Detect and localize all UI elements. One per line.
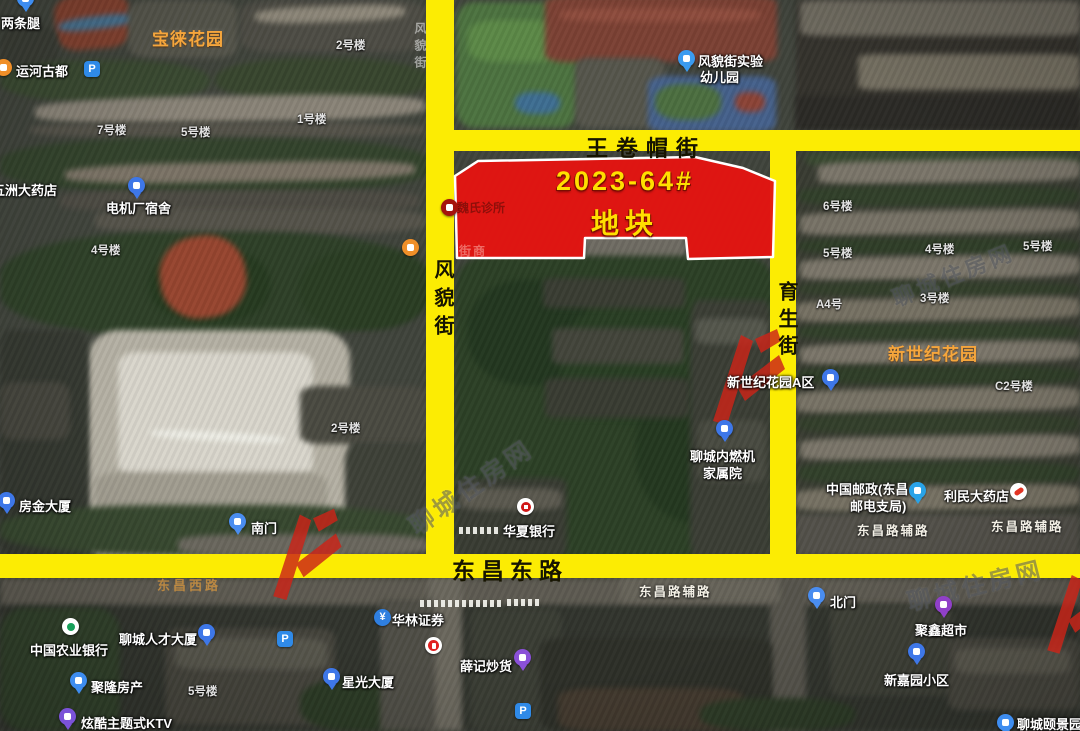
- restaurant-icon-glyph: [0, 64, 7, 71]
- poi-label: 北门: [830, 592, 856, 611]
- supermarket-pin-icon[interactable]: [935, 596, 952, 613]
- poi-label: 街商: [459, 242, 487, 259]
- estate-name-label: 宝徕花园: [152, 25, 224, 50]
- building-label: 4号楼: [925, 241, 954, 257]
- parking-icon-glyph: P: [88, 64, 95, 75]
- poi-label: 利民大药店: [944, 486, 1009, 505]
- ktv-pin-icon[interactable]: [59, 708, 76, 725]
- building-label: 6号楼: [823, 198, 852, 214]
- poi-label: 新嘉园小区: [884, 670, 949, 689]
- parking-icon[interactable]: P: [84, 61, 100, 77]
- poi-label: 幼儿园: [700, 67, 739, 86]
- road-label-wangjuanmao: 王卷帽街: [586, 131, 706, 163]
- parking-icon-glyph: P: [281, 634, 288, 645]
- shop-icon[interactable]: [402, 239, 419, 256]
- road-label-yusheng: 育生街: [772, 281, 801, 362]
- bank-pin-icon[interactable]: [822, 369, 839, 386]
- bank-pin-icon-glyph: [827, 374, 834, 381]
- road-sub-label: 东昌西路: [157, 575, 221, 594]
- road-sub-label: 东昌路辅路: [857, 520, 930, 539]
- poi-label: 电机厂宿舍: [106, 198, 171, 217]
- gate-pin-icon-glyph: [234, 518, 241, 525]
- restaurant-icon[interactable]: [0, 59, 12, 76]
- poi-label: 华林证券: [392, 610, 444, 629]
- poi-label: 华夏银行: [503, 521, 555, 540]
- bank-pin-icon-glyph: [328, 673, 335, 680]
- post-office-pin-icon-glyph: [914, 487, 921, 494]
- building-label: 3号楼: [920, 290, 949, 306]
- shop-icon-glyph: [407, 244, 414, 251]
- supermarket-pin-icon-glyph: [940, 601, 947, 608]
- road-label-dongchangdong: 东昌东路: [452, 552, 568, 586]
- building-label: 4号楼: [91, 242, 120, 258]
- fastfood-icon[interactable]: [425, 637, 442, 654]
- poi-label: 南门: [251, 518, 277, 537]
- pharmacy-icon[interactable]: [1010, 483, 1027, 500]
- building-label: 5号楼: [1023, 238, 1052, 254]
- poi-label: 薛记炒货: [460, 656, 512, 675]
- road-sub-label: 东昌路辅路: [991, 516, 1064, 535]
- realty-pin-icon[interactable]: [70, 672, 87, 689]
- bank-pin-icon-glyph: [3, 497, 10, 504]
- realty-pin-icon-glyph: [75, 677, 82, 684]
- gate-pin-icon[interactable]: [808, 587, 825, 604]
- bank-pin-icon-glyph: [203, 629, 210, 636]
- poi-label: 星光大厦: [342, 672, 394, 691]
- estate-name-label: 新世纪花园: [888, 340, 978, 365]
- building-label: A4号: [816, 296, 842, 312]
- post-office-pin-icon[interactable]: [909, 482, 926, 499]
- poi-label: 邮电支局): [850, 496, 906, 515]
- poi-label: 聚鑫超市: [915, 620, 967, 639]
- bank-pin-icon-glyph: [133, 182, 140, 189]
- road-sub-label: 东昌路辅路: [639, 581, 712, 600]
- securities-icon-glyph: ¥: [379, 612, 385, 623]
- huaxia-bank-icon-glyph: [521, 502, 531, 512]
- parcel-number: 2023-64#: [480, 166, 770, 197]
- estate-pin-icon[interactable]: [997, 714, 1014, 731]
- poi-label: 魏氏诊所: [457, 199, 505, 216]
- snack-pin-icon[interactable]: [514, 649, 531, 666]
- abc-bank-icon[interactable]: [62, 618, 79, 635]
- building-label: 5号楼: [188, 683, 217, 699]
- poi-label: 聊城颐景园: [1017, 714, 1080, 731]
- bank-pin-icon[interactable]: [716, 420, 733, 437]
- poi-label: 炫酷主题式KTV: [81, 713, 172, 731]
- bank-pin-icon[interactable]: [128, 177, 145, 194]
- bank-pin-icon-glyph: [721, 425, 728, 432]
- fastfood-icon-glyph: [428, 640, 439, 651]
- building-label: 5号楼: [823, 245, 852, 261]
- poi-label: 聊城人才大厦: [119, 629, 197, 648]
- securities-icon[interactable]: ¥: [374, 609, 391, 626]
- abc-bank-icon-glyph: [67, 623, 75, 631]
- bank-pin-icon[interactable]: [908, 643, 925, 660]
- pharmacy-icon-glyph: [1013, 487, 1024, 497]
- poi-label: 聚隆房产: [91, 677, 143, 696]
- snack-pin-icon-glyph: [519, 654, 526, 661]
- kindergarten-pin-icon-glyph: [683, 55, 690, 62]
- clinic-icon[interactable]: [441, 199, 458, 216]
- poi-pin-icon[interactable]: [17, 0, 34, 7]
- bank-pin-icon[interactable]: [0, 492, 15, 509]
- poi-label: 房金大厦: [19, 496, 71, 515]
- poi-label: 中国农业银行: [30, 640, 108, 659]
- building-label: 7号楼: [97, 122, 126, 138]
- ktv-pin-icon-glyph: [64, 713, 71, 720]
- estate-pin-icon-glyph: [1002, 719, 1009, 726]
- road-label-fengmao: 风貌街: [428, 259, 457, 343]
- building-label: 2号楼: [336, 37, 365, 53]
- poi-label: 家属院: [703, 463, 742, 482]
- bank-pin-icon-glyph: [913, 648, 920, 655]
- parking-icon[interactable]: P: [515, 703, 531, 719]
- building-label: 5号楼: [181, 124, 210, 140]
- satellite-map: 风貌街 2023-64# 地块 聊城住房网 聊城住房网 聊城住房网 王卷帽街 风…: [0, 0, 1080, 731]
- parking-icon-glyph: P: [519, 706, 526, 717]
- parcel-name: 地块: [480, 202, 770, 242]
- gate-pin-icon[interactable]: [229, 513, 246, 530]
- building-label: 1号楼: [297, 111, 326, 127]
- bank-pin-icon[interactable]: [198, 624, 215, 641]
- kindergarten-pin-icon[interactable]: [678, 50, 695, 67]
- building-label: C2号楼: [995, 378, 1033, 394]
- bank-pin-icon[interactable]: [323, 668, 340, 685]
- huaxia-bank-icon[interactable]: [517, 498, 534, 515]
- building-label: 2号楼: [331, 420, 360, 436]
- poi-label: 新世纪花园A区: [727, 372, 814, 391]
- poi-pin-icon-glyph: [22, 0, 29, 2]
- parking-icon[interactable]: P: [277, 631, 293, 647]
- poi-label: 两条腿: [1, 13, 40, 32]
- poi-label: 五洲大药店: [0, 180, 57, 199]
- poi-label: 运河古都: [16, 61, 68, 80]
- gate-pin-icon-glyph: [813, 592, 820, 599]
- clinic-icon-glyph: [446, 204, 453, 211]
- parcel-label: 2023-64# 地块: [480, 166, 770, 242]
